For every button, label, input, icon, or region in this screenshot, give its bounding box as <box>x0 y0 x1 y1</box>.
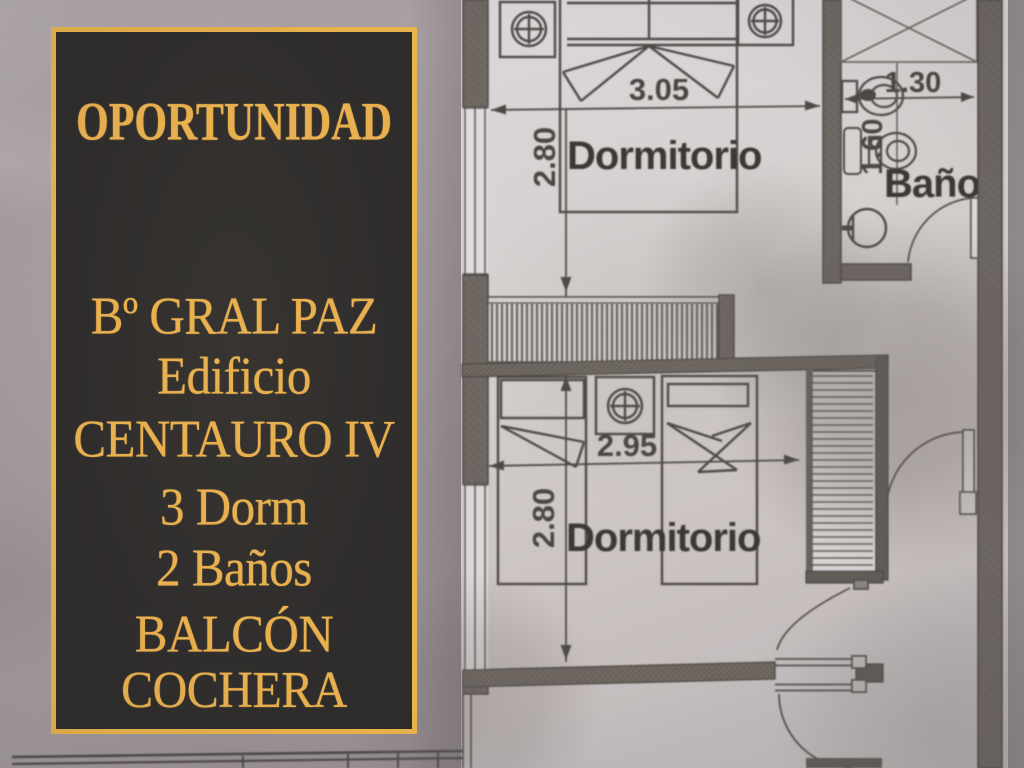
svg-text:3.05: 3.05 <box>629 72 689 107</box>
svg-text:Dormitorio: Dormitorio <box>566 516 760 560</box>
svg-text:2.80: 2.80 <box>526 488 561 548</box>
svg-text:2.80: 2.80 <box>527 127 562 187</box>
svg-text:1.30: 1.30 <box>885 67 941 99</box>
